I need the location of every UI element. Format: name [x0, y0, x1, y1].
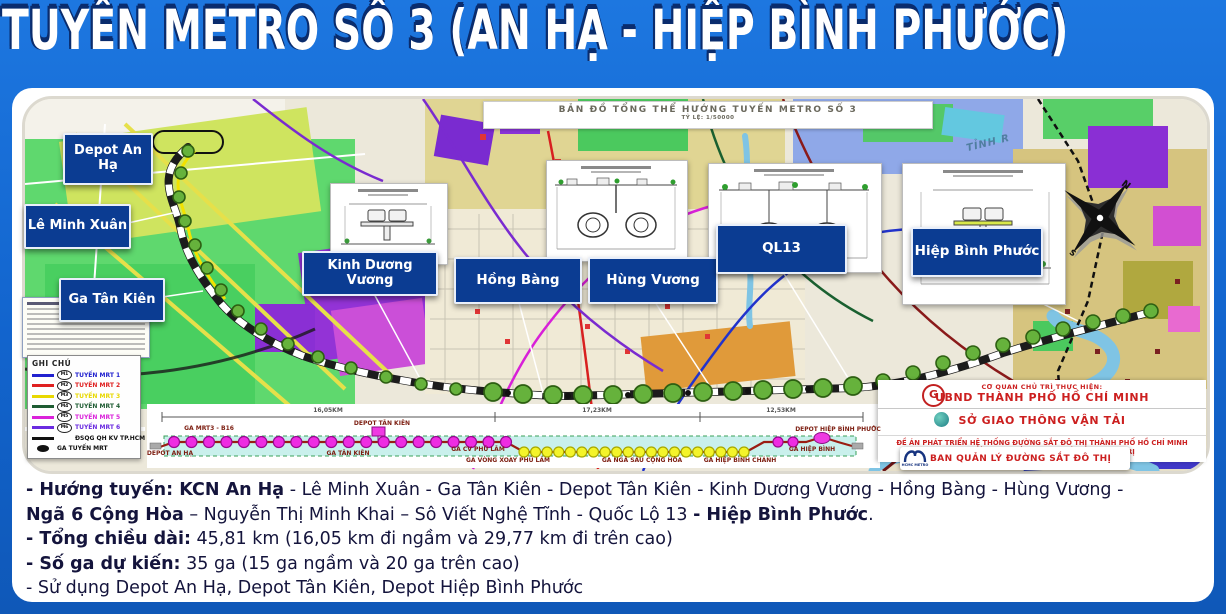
- landuse-pink: [1168, 306, 1200, 332]
- line-badge: M4: [57, 402, 72, 412]
- metro-station-dot: [312, 351, 324, 363]
- legend-row: M4TUYẾN MRT 4: [32, 402, 136, 413]
- station-label-le-minh-xuan: Lê Minh Xuân: [24, 204, 131, 249]
- segment-distance-label: 17,23KM: [582, 407, 612, 414]
- metro-station-dot: [380, 371, 392, 383]
- cross-section-inset-hong-bang: [546, 160, 688, 262]
- station-label-depot-an-ha: Depot An Hạ: [63, 133, 153, 185]
- metro-station-dot: [175, 167, 187, 179]
- metro-station-dot: [1026, 330, 1040, 344]
- metro-station-dot: [484, 383, 502, 401]
- interchange-dot: [565, 393, 571, 399]
- metro-station-dot: [450, 383, 462, 395]
- line-badge: M5: [57, 412, 72, 422]
- legend-label: TUYẾN MRT 5: [75, 414, 120, 421]
- station-label-hiep-binh-phuoc: Hiệp Bình Phước: [911, 227, 1043, 277]
- legend-row: M5TUYẾN MRT 5: [32, 412, 136, 423]
- station-swatch-icon: [37, 445, 49, 452]
- landuse-magenta2: [1153, 206, 1201, 246]
- station-label-hong-bang: Hồng Bàng: [454, 257, 582, 304]
- info-row-city: G CƠ QUAN CHỦ TRÌ THỰC HIỆN: UBND THÀNH …: [878, 380, 1206, 409]
- compass-south-label: S: [1068, 248, 1078, 259]
- legend-label: TUYẾN MRT 6: [75, 424, 120, 431]
- map-title: BẢN ĐỒ TỔNG THỂ HƯỚNG TUYẾN METRO SỐ 3: [484, 102, 932, 115]
- map-legend: GHI CHÚ M1TUYẾN MRT 1M2TUYẾN MRT 2M3TUYẾ…: [27, 355, 141, 459]
- segment-distance-label: 16,05KM: [313, 407, 343, 414]
- metro-station-dot: [345, 362, 357, 374]
- metro-station-dot: [754, 381, 772, 399]
- metro-station-dot: [664, 384, 682, 402]
- metro-station-dot: [604, 386, 622, 404]
- schematic-top-label: GA MRT3 - B16: [184, 425, 234, 432]
- metro-station-dot: [415, 378, 427, 390]
- metro-station-dot: [282, 338, 294, 350]
- schematic-bottom-label: GA HIỆP BÌNH: [789, 446, 835, 453]
- metro-station-dot: [1144, 304, 1158, 318]
- legend-rows: M1TUYẾN MRT 1M2TUYẾN MRT 2M3TUYẾN MRT 3M…: [32, 370, 136, 454]
- metro-station-dot: [514, 385, 532, 403]
- legend-label: ĐSQG QH KV TP.HCM: [75, 435, 145, 442]
- legend-row: M6TUYẾN MRT 6: [32, 423, 136, 434]
- slide-title: TUYẾN METRO SỐ 3 (AN HẠ - HIỆP BÌNH PHƯỚ…: [2, 0, 1068, 62]
- route-details-text: - Hướng tuyến: KCN An Hạ - Lê Minh Xuân …: [26, 478, 1206, 601]
- info-row-dot: SỞ GIAO THÔNG VẬN TẢI HCMC METRO BAN QUẢ…: [878, 409, 1206, 436]
- metro-station-dot: [814, 379, 832, 397]
- line-swatch-icon: [32, 426, 54, 429]
- legend-row: ĐSQG QH KV TP.HCM: [32, 433, 136, 444]
- schematic-top-label: DEPOT TÂN KIÊN: [354, 420, 410, 427]
- line-swatch-icon: [32, 405, 54, 408]
- slide: G CƠ QUAN CHỦ TRÌ THỰC HIỆN: UBND THÀNH …: [0, 0, 1226, 614]
- legend-label: TUYẾN MRT 2: [75, 382, 120, 389]
- hcmc-city-logo-icon: G: [922, 384, 945, 407]
- authority-info-panel: G CƠ QUAN CHỦ TRÌ THỰC HIỆN: UBND THÀNH …: [878, 380, 1206, 462]
- details-line: - Hướng tuyến: KCN An Hạ - Lê Minh Xuân …: [26, 478, 1206, 503]
- line-swatch-icon: [32, 395, 54, 398]
- interchange-dot: [745, 388, 751, 394]
- line-swatch-icon: [32, 437, 54, 440]
- metro-station-dot: [574, 386, 592, 404]
- segment-distance-label: 12,53KM: [766, 407, 796, 414]
- schematic-bottom-label: GA TÂN KIÊN: [326, 450, 369, 457]
- legend-label: TUYẾN MRT 1: [75, 372, 120, 379]
- schematic-bottom-label: GA HIỆP BÌNH CHÁNH: [704, 457, 777, 464]
- metro-station-dot: [1056, 322, 1070, 336]
- dot-logo-icon: [934, 412, 949, 427]
- metro-station-dot: [1086, 315, 1100, 329]
- schematic-bottom-label: GA NGÃ SÁU CỘNG HÒA: [602, 457, 682, 464]
- legend-label: GA TUYẾN MRT: [57, 445, 108, 452]
- metro-station-dot: [906, 366, 920, 380]
- metro-station-dot: [232, 305, 244, 317]
- details-line: - Số ga dự kiến: 35 ga (15 ga ngầm và 20…: [26, 552, 1206, 577]
- metro-station-dot: [1116, 309, 1130, 323]
- metro-station-dot: [936, 356, 950, 370]
- interchange-dot: [685, 390, 691, 396]
- interchange-dot: [625, 392, 631, 398]
- metro-station-dot: [189, 239, 201, 251]
- station-label-hung-vuong: Hùng Vương: [588, 257, 718, 304]
- interchange-dot: [805, 386, 811, 392]
- line-swatch-icon: [32, 374, 54, 377]
- legend-title: GHI CHÚ: [32, 359, 136, 368]
- metro-station-dot: [179, 215, 191, 227]
- station-label-ga-tan-kien: Ga Tân Kiên: [59, 278, 165, 322]
- legend-label: TUYẾN MRT 3: [75, 393, 120, 400]
- schematic-bottom-label: GA VÒNG XOAY PHÚ LÂM: [466, 457, 550, 464]
- metro-station-dot: [634, 385, 652, 403]
- details-line: - Sử dụng Depot An Hạ, Depot Tân Kiên, D…: [26, 576, 1206, 601]
- line-badge: M1: [57, 370, 72, 380]
- station-label-kinh-duong-vuong: Kinh Dương Vương: [302, 251, 438, 296]
- metro-station-dot: [182, 145, 194, 157]
- metro-station-dot: [544, 386, 562, 404]
- info-dot-name: SỞ GIAO THÔNG VẬN TẢI: [958, 414, 1125, 427]
- map-title-bar: BẢN ĐỒ TỔNG THỂ HƯỚNG TUYẾN METRO SỐ 3 T…: [483, 101, 933, 129]
- line-swatch-icon: [32, 416, 54, 419]
- line-badge: M3: [57, 391, 72, 401]
- metro-station-dot: [784, 380, 802, 398]
- metro-station-dot: [173, 191, 185, 203]
- schematic-bottom-label: DEPOT AN HẠ: [147, 450, 193, 457]
- metro-station-dot: [966, 346, 980, 360]
- details-line: - Tổng chiều dài: 45,81 km (16,05 km đi …: [26, 527, 1206, 552]
- legend-row: M1TUYẾN MRT 1: [32, 370, 136, 381]
- maur-name: BAN QUẢN LÝ ĐƯỜNG SẮT ĐÔ THỊ: [930, 454, 1111, 464]
- details-line: Ngã 6 Cộng Hòa – Nguyễn Thị Minh Khai – …: [26, 503, 1206, 528]
- schematic-top-label: DEPOT HIỆP BÌNH PHƯỚC: [795, 426, 881, 433]
- legend-row: GA TUYẾN MRT: [32, 444, 136, 455]
- metro-station-dot: [996, 338, 1010, 352]
- line-badge: M6: [57, 423, 72, 433]
- map-scale: TỶ LỆ: 1/50000: [484, 115, 932, 121]
- compass-rose-icon: N S: [1052, 170, 1148, 266]
- metro-station-dot: [724, 382, 742, 400]
- station-label-ql13: QL13: [716, 224, 847, 274]
- metro-station-dot: [255, 323, 267, 335]
- metro-station-dot: [694, 383, 712, 401]
- legend-label: TUYẾN MRT 4: [75, 403, 120, 410]
- hcmc-metro-logo-icon: HCMC METRO: [900, 450, 930, 467]
- metro-station-dot: [201, 262, 213, 274]
- legend-row: M2TUYẾN MRT 2: [32, 381, 136, 392]
- metro-station-dot: [844, 377, 862, 395]
- legend-row: M3TUYẾN MRT 3: [32, 391, 136, 402]
- line-swatch-icon: [32, 384, 54, 387]
- maur-overlay-card: HCMC METRO BAN QUẢN LÝ ĐƯỜNG SẮT ĐÔ THỊ: [900, 447, 1130, 470]
- line-badge: M2: [57, 381, 72, 391]
- interchange-dot: [505, 390, 511, 396]
- metro-station-dot: [215, 284, 227, 296]
- schematic-bottom-label: GA CV PHÚ LÂM: [451, 446, 505, 453]
